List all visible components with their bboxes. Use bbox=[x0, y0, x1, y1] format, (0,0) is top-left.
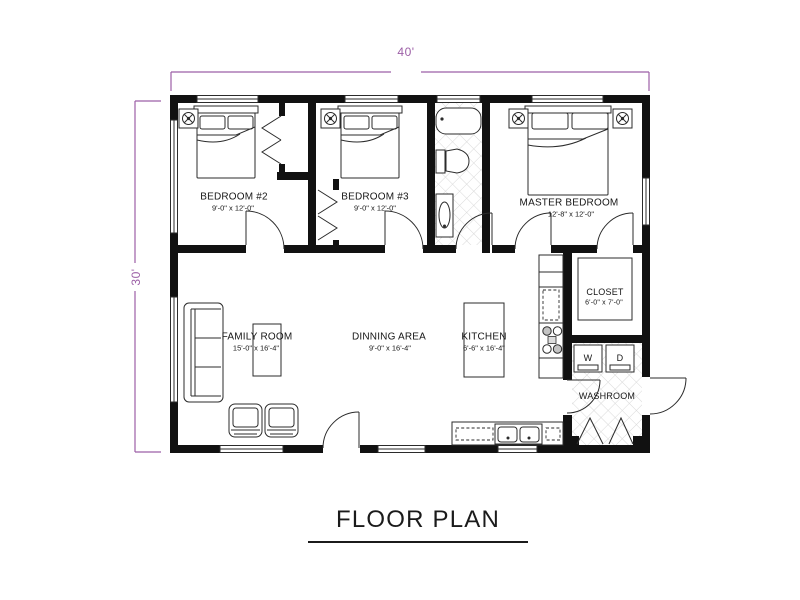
room-size-family-room: 15'-0" x 16'-4" bbox=[233, 344, 279, 353]
bed-icon bbox=[194, 106, 258, 178]
window-icon bbox=[437, 96, 480, 103]
bifold-door-icon bbox=[318, 190, 337, 240]
ceiling-light-icon bbox=[321, 109, 340, 128]
bed-icon bbox=[525, 106, 611, 195]
room-size-bedroom2: 9'-0" x 12'-0" bbox=[212, 204, 254, 213]
room-size-master-bedroom: 12'-8" x 12'-0" bbox=[548, 210, 594, 219]
door-swing-icon bbox=[246, 211, 284, 249]
dimension-depth-label: 30' bbox=[129, 268, 143, 285]
room-label-dining-area: DINNING AREA bbox=[352, 332, 426, 343]
ceiling-light-icon bbox=[613, 109, 632, 128]
door-swing-icon bbox=[597, 213, 633, 249]
main-entry-gap bbox=[323, 445, 360, 453]
floor-plan-page: 40' 30' BEDROOM #2 9'-0" x 12'-0" BEDROO… bbox=[0, 0, 800, 600]
door-swing-icon bbox=[323, 412, 359, 448]
room-size-closet: 6'-0" x 7'-0" bbox=[585, 300, 623, 307]
door-swing-icon bbox=[515, 213, 551, 249]
room-label-washroom: WASHROOM bbox=[579, 391, 635, 401]
window-icon bbox=[171, 120, 178, 233]
window-icon bbox=[197, 96, 258, 103]
room-size-bedroom3: 9'-0" x 12'-0" bbox=[354, 204, 396, 213]
window-icon bbox=[220, 446, 283, 453]
room-label-master-bedroom: MASTER BEDROOM bbox=[520, 198, 619, 209]
armchair-icon bbox=[265, 404, 298, 437]
room-size-kitchen: 6'-6" x 16'-4" bbox=[463, 344, 505, 353]
window-icon bbox=[171, 297, 178, 402]
bathtub-icon bbox=[436, 108, 481, 134]
ceiling-light-icon bbox=[509, 109, 528, 128]
dimension-width-label: 40' bbox=[397, 45, 414, 59]
window-icon bbox=[345, 96, 398, 103]
vanity-sink-icon bbox=[436, 194, 453, 237]
room-label-closet: CLOSET bbox=[586, 287, 623, 297]
ceiling-light-icon bbox=[179, 109, 198, 128]
room-label-bedroom3: BEDROOM #3 bbox=[341, 192, 409, 203]
washer-label: W bbox=[584, 353, 593, 363]
window-icon bbox=[498, 446, 537, 453]
bifold-door-icon bbox=[262, 116, 281, 164]
bed-icon bbox=[338, 106, 402, 178]
window-icon bbox=[643, 178, 650, 225]
dimension-line-width bbox=[171, 72, 649, 91]
armchair-icon bbox=[229, 404, 262, 437]
door-swing-icon bbox=[650, 378, 686, 414]
door-swing-icon bbox=[385, 211, 423, 249]
room-label-kitchen: KITCHEN bbox=[461, 332, 506, 343]
page-title: FLOOR PLAN bbox=[308, 506, 528, 543]
room-label-family-room: FAMILY ROOM bbox=[222, 332, 293, 343]
dryer-label: D bbox=[617, 353, 624, 363]
room-label-bedroom2: BEDROOM #2 bbox=[200, 192, 268, 203]
double-sink-icon bbox=[495, 424, 542, 444]
window-icon bbox=[378, 446, 425, 453]
kitchen-counter bbox=[539, 255, 563, 378]
toilet-icon bbox=[436, 149, 469, 173]
side-entry-gap bbox=[642, 377, 650, 415]
sofa-icon bbox=[184, 303, 223, 402]
sink-counter bbox=[452, 422, 563, 445]
room-size-dining-area: 9'-0" x 16'-4" bbox=[369, 344, 411, 353]
window-icon bbox=[532, 96, 603, 103]
